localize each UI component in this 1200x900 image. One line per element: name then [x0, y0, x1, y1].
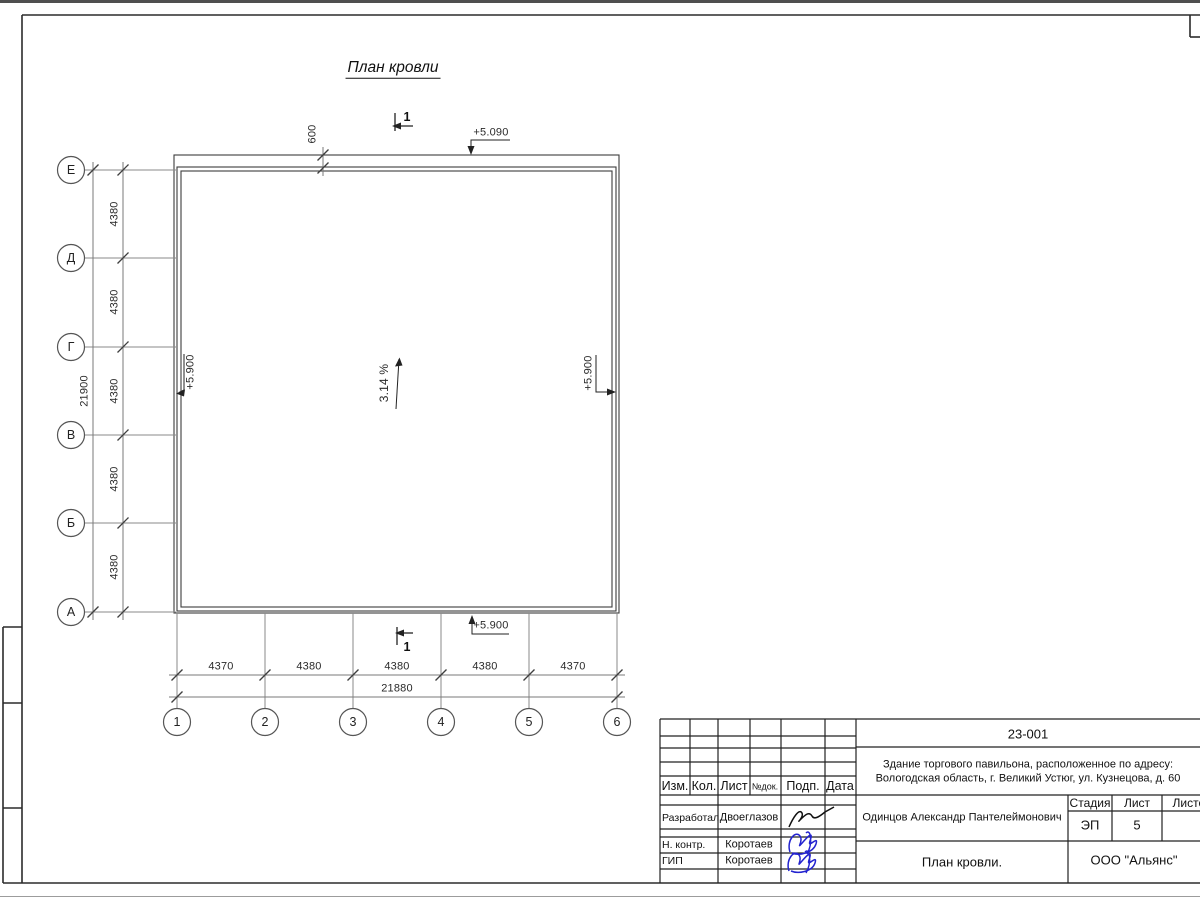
elevation-leaders [179, 140, 608, 634]
name-developed: Двоеглазов [720, 813, 778, 824]
axis-label-4: 4 [438, 716, 445, 729]
col-header-kol: Кол. [692, 780, 717, 793]
left-seg-dim-3: 4380 [110, 378, 121, 403]
sheet-frame [3, 15, 1200, 883]
axis-grid-lines [85, 170, 617, 708]
name-gip: Коротаев [725, 856, 773, 867]
object-address-line2: Вологодская область, г. Великий Устюг, у… [876, 774, 1181, 785]
col-header-list: Лист [720, 780, 747, 793]
signature-developed [789, 807, 834, 827]
stage-label: Стадия [1070, 797, 1111, 809]
axis-label-3: 3 [350, 716, 357, 729]
axis-label-G: Г [68, 341, 75, 354]
role-gip: ГИП [662, 856, 683, 867]
drawing-name: План кровли. [922, 856, 1002, 869]
left-seg-dim-4: 4380 [110, 466, 121, 491]
company-name: ООО "Альянс" [1091, 854, 1178, 867]
left-seg-dim-5: 4380 [110, 554, 121, 579]
elevation-bottom-label: +5.900 [473, 621, 508, 632]
elevation-right-label: +5.900 [584, 355, 595, 390]
section-mark-label-bottom: 1 [404, 641, 411, 654]
doc-number: 23-001 [1008, 728, 1048, 741]
section-mark-label-top: 1 [404, 111, 411, 124]
slope-label: 3.14 % [378, 364, 390, 403]
col-header-podp: Подп. [786, 780, 819, 793]
axis-label-B: Б [67, 517, 75, 530]
elevation-arrowheads [176, 146, 616, 624]
axis-label-E: Е [67, 164, 75, 177]
section-marks [394, 113, 413, 645]
bottom-seg-dim-3: 4380 [384, 662, 409, 673]
axis-label-A: А [67, 606, 75, 619]
dimension-lines [93, 147, 625, 697]
bottom-seg-dim-4: 4380 [472, 662, 497, 673]
sheets-label: Листов [1173, 797, 1200, 809]
left-seg-dim-2: 4380 [110, 289, 121, 314]
drawing-sheet: План кровли 1 1 +5.090 600 +5.900 +5.900… [0, 0, 1200, 900]
role-ncontr: Н. контр. [662, 840, 705, 851]
axis-label-D: Д [67, 252, 75, 265]
object-address-line1: Здание торгового павильона, расположенно… [883, 760, 1173, 771]
axis-label-1: 1 [174, 716, 181, 729]
col-header-ndok: №док. [752, 783, 778, 792]
bottom-seg-dim-2: 4380 [296, 662, 321, 673]
left-total-dim: 21900 [80, 375, 91, 407]
name-ncontr: Коротаев [725, 840, 773, 851]
axis-circles [58, 157, 631, 736]
axis-label-6: 6 [614, 716, 621, 729]
signature-ncontr [789, 832, 816, 854]
eave-dim-label: 600 [308, 125, 319, 144]
col-header-izm: Изм. [662, 780, 689, 793]
dimension-ticks [88, 150, 623, 703]
roof-outline [174, 155, 619, 613]
drawing-title: План кровли [346, 60, 441, 79]
sheet-label: Лист [1124, 797, 1150, 809]
axis-label-2: 2 [262, 716, 269, 729]
axis-label-V: В [67, 429, 75, 442]
axis-label-5: 5 [526, 716, 533, 729]
client-name: Одинцов Александр Пантелеймонович [862, 813, 1061, 824]
left-seg-dim-1: 4380 [110, 201, 121, 226]
sheet-value: 5 [1133, 819, 1140, 832]
role-developed: Разработал [662, 813, 719, 824]
stage-value: ЭП [1081, 819, 1100, 832]
elevation-top-label: +5.090 [473, 128, 508, 139]
bottom-seg-dim-5: 4370 [560, 662, 585, 673]
bottom-total-dim: 21880 [381, 684, 413, 695]
signatures [788, 807, 834, 873]
bottom-seg-dim-1: 4370 [208, 662, 233, 673]
elevation-left-label: +5.900 [186, 354, 197, 389]
col-header-data: Дата [826, 780, 854, 793]
